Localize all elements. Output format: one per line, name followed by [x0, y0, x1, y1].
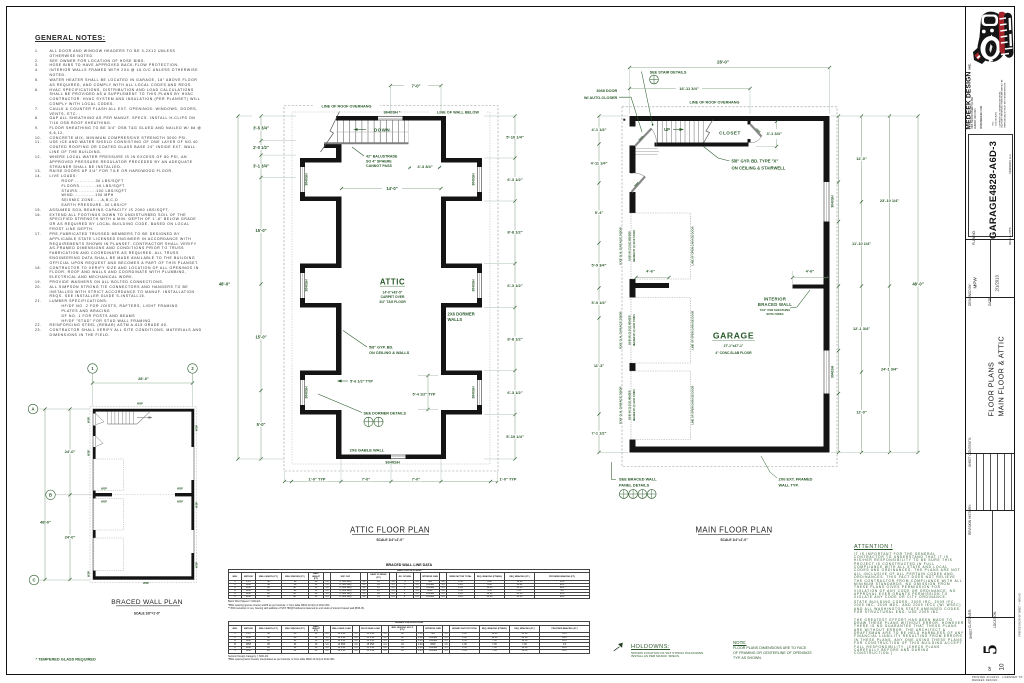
svg-text:7'-0": 7'-0" [362, 477, 371, 482]
svg-text:B: B [49, 492, 52, 497]
svg-text:5'-10 1/4": 5'-10 1/4" [506, 434, 524, 439]
svg-text:14'-0"x43'-5": 14'-0"x43'-5" [383, 291, 403, 295]
svg-text:7'-0": 7'-0" [411, 83, 420, 88]
svg-text:28'-0": 28'-0" [717, 60, 729, 65]
svg-text:15'-0": 15'-0" [255, 228, 266, 233]
svg-text:SEE DORMER DETAILS: SEE DORMER DETAILS [364, 412, 407, 416]
svg-text:LINE OF ROOF OVERHANG: LINE OF ROOF OVERHANG [322, 105, 372, 109]
svg-text:ATTIC FLOOR PLAN: ATTIC FLOOR PLAN [350, 526, 430, 535]
svg-text:ON CEILING & WALLS: ON CEILING & WALLS [369, 351, 410, 355]
svg-text:WSP: WSP [177, 487, 183, 491]
svg-text:5'-0": 5'-0" [257, 422, 266, 427]
svg-text:3640SH: 3640SH [305, 279, 309, 292]
svg-text:2'-0 1/2": 2'-0 1/2" [253, 145, 269, 150]
svg-text:UP: UP [664, 127, 670, 132]
svg-text:LINE OF OPEN GARAGE DOOR: LINE OF OPEN GARAGE DOOR [691, 311, 695, 350]
svg-text:12'-0": 12'-0" [856, 156, 867, 161]
svg-text:3040SH: 3040SH [831, 195, 835, 208]
svg-text:WSP: WSP [101, 487, 107, 491]
svg-text:4'-11 1/4": 4'-11 1/4" [591, 161, 608, 166]
svg-text:16080 W/ (2) 2X12 HEADER: 16080 W/ (2) 2X12 HEADER [629, 390, 632, 420]
svg-text:3640SH: 3640SH [305, 173, 309, 186]
svg-text:WSP: WSP [195, 425, 199, 431]
svg-text:SCALE 1/8"=1'-0": SCALE 1/8"=1'-0" [134, 612, 161, 616]
svg-text:WALL TYP.: WALL TYP. [779, 483, 799, 488]
svg-text:INTERIOR: INTERIOR [764, 297, 786, 302]
svg-text:5'-9 3/4": 5'-9 3/4" [592, 263, 607, 268]
svg-text:48'-0": 48'-0" [219, 282, 230, 287]
svg-text:SEE STAIR DETAILS: SEE STAIR DETAILS [650, 71, 687, 75]
svg-text:14'-0": 14'-0" [386, 186, 397, 191]
svg-text:24'-0": 24'-0" [65, 449, 76, 454]
svg-text:7'-1 1/2": 7'-1 1/2" [592, 431, 607, 436]
svg-text:3'-1 3/4": 3'-1 3/4" [767, 131, 782, 136]
svg-text:CANNOT PASS: CANNOT PASS [366, 164, 392, 168]
svg-text:5'-4 1/2" TYP: 5'-4 1/2" TYP [413, 393, 436, 397]
svg-text:3040SH: 3040SH [831, 365, 835, 378]
svg-text:PANEL DETAILS: PANEL DETAILS [619, 483, 650, 488]
svg-text:11'-3": 11'-3" [594, 363, 604, 368]
svg-text:28'-0": 28'-0" [138, 376, 149, 381]
svg-text:5'-10 1/4": 5'-10 1/4" [506, 134, 524, 139]
svg-text:42" BALUSTRADE: 42" BALUSTRADE [366, 155, 398, 159]
svg-text:1: 1 [91, 366, 94, 371]
svg-text:WSP: WSP [177, 500, 183, 504]
svg-text:* TEMPERED GLASS REQUIRED: * TEMPERED GLASS REQUIRED [36, 657, 97, 662]
svg-text:GARAGE: GARAGE [713, 331, 754, 341]
svg-text:16080 W/ (2) 2X12 HEADER: 16080 W/ (2) 2X12 HEADER [629, 315, 632, 345]
svg-text:9'X8' O.H. GARAGE DOOR: 9'X8' O.H. GARAGE DOOR [619, 386, 623, 424]
svg-text:BRACED WALL: BRACED WALL [758, 302, 792, 307]
svg-text:BOTH SIDES: BOTH SIDES [766, 312, 783, 316]
svg-text:6'-3 1/2": 6'-3 1/2" [507, 177, 522, 182]
svg-text:5'-6 1/2" TYP: 5'-6 1/2" TYP [350, 379, 373, 383]
svg-text:C: C [32, 578, 35, 583]
svg-text:8'-8 1/2": 8'-8 1/2" [507, 230, 522, 235]
svg-text:48'-0": 48'-0" [40, 520, 51, 525]
svg-text:HEADER W/ (2) JACK STUDS: HEADER W/ (2) JACK STUDS [633, 230, 636, 262]
svg-text:23'-10 1/4": 23'-10 1/4" [880, 198, 899, 203]
svg-text:ATTIC: ATTIC [380, 278, 405, 287]
svg-text:3640SH: 3640SH [472, 173, 476, 186]
svg-text:SCALE 1/4"=1'-0": SCALE 1/4"=1'-0" [720, 538, 748, 542]
svg-text:16'-11 3/4": 16'-11 3/4" [679, 86, 699, 91]
svg-text:1'-0" TYP: 1'-0" TYP [499, 477, 516, 482]
svg-text:12'-0": 12'-0" [856, 410, 867, 415]
svg-text:5'-9 1/4": 5'-9 1/4" [592, 300, 607, 305]
svg-text:CARPET OVER: CARPET OVER [381, 295, 405, 299]
svg-text:A: A [31, 407, 34, 412]
svg-text:CLOSET: CLOSET [719, 131, 741, 136]
svg-text:3640SH: 3640SH [472, 386, 476, 399]
svg-text:4'-1 1/4": 4'-1 1/4" [592, 127, 607, 132]
svg-text:5/8" GYP. BD. TYPE "X": 5/8" GYP. BD. TYPE "X" [732, 159, 779, 164]
svg-text:3'-1 3/4": 3'-1 3/4" [253, 164, 269, 169]
svg-text:SEE BRACED WALL: SEE BRACED WALL [619, 477, 657, 482]
svg-text:3068 DOOR: 3068 DOOR [596, 89, 617, 93]
svg-text:LINE OF OPEN GARAGE DOOR: LINE OF OPEN GARAGE DOOR [691, 226, 695, 265]
svg-text:WSP: WSP [87, 571, 91, 577]
svg-text:WSP: WSP [101, 500, 107, 504]
svg-text:2X6 DORMER: 2X6 DORMER [448, 311, 475, 316]
svg-text:6'-3 1/2": 6'-3 1/2" [507, 283, 522, 288]
svg-text:4'-6": 4'-6" [806, 269, 815, 274]
svg-text:W/ AUTO-CLOSER: W/ AUTO-CLOSER [584, 96, 618, 100]
svg-text:12'-1 3/4": 12'-1 3/4" [853, 326, 870, 331]
svg-text:3'-5 3/4": 3'-5 3/4" [253, 126, 269, 131]
svg-text:4'-6": 4'-6" [646, 269, 655, 274]
svg-text:ON CEILING & STAIRWELL: ON CEILING & STAIRWELL [732, 166, 786, 171]
svg-text:WALLS: WALLS [448, 317, 463, 322]
svg-text:BRACED WALL PLAN: BRACED WALL PLAN [111, 599, 183, 606]
svg-text:3640SH *: 3640SH * [383, 109, 401, 114]
svg-text:WSP: WSP [195, 502, 199, 508]
svg-text:3640SH: 3640SH [385, 459, 400, 464]
svg-text:2: 2 [191, 366, 194, 371]
svg-text:9'X8' O.H. GARAGE DOOR: 9'X8' O.H. GARAGE DOOR [619, 226, 623, 264]
svg-text:WSP: WSP [137, 402, 143, 406]
svg-text:SCALE 1/4"=1'-0": SCALE 1/4"=1'-0" [376, 538, 404, 542]
svg-text:3640SH: 3640SH [472, 279, 476, 292]
svg-text:24'-1 3/4": 24'-1 3/4" [881, 367, 898, 372]
svg-text:LINE OF WALL BELOW: LINE OF WALL BELOW [437, 111, 479, 115]
svg-text:LINE OF OPEN GARAGE DOOR: LINE OF OPEN GARAGE DOOR [691, 386, 695, 425]
svg-text:WSP: WSP [195, 562, 199, 568]
svg-text:8'-8 1/2": 8'-8 1/2" [507, 336, 522, 341]
svg-text:16080 W/ (2) 2X12 HEADER: 16080 W/ (2) 2X12 HEADER [629, 231, 632, 261]
svg-text:WSP: WSP [87, 417, 91, 423]
svg-text:4" CONC.SLAB FLOOR: 4" CONC.SLAB FLOOR [715, 351, 752, 355]
svg-text:1'-0" TYP: 1'-0" TYP [308, 477, 325, 482]
svg-text:DOWN: DOWN [374, 127, 390, 132]
svg-text:9'X8' O.H. GARAGE DOOR: 9'X8' O.H. GARAGE DOOR [619, 311, 623, 349]
svg-text:11'-10 1/4": 11'-10 1/4" [852, 241, 871, 246]
svg-text:SO 4" SPHERE: SO 4" SPHERE [366, 159, 392, 163]
svg-text:HEADER W/ (2) JACK STUDS: HEADER W/ (2) JACK STUDS [633, 389, 636, 421]
svg-text:7'-0": 7'-0" [412, 477, 421, 482]
svg-text:4'-3 3/4": 4'-3 3/4" [417, 164, 432, 169]
svg-text:WSP: WSP [143, 581, 149, 585]
svg-text:15'-0": 15'-0" [255, 335, 266, 340]
svg-text:MAIN FLOOR PLAN: MAIN FLOOR PLAN [695, 526, 772, 535]
svg-text:2X6 GABLE WALL: 2X6 GABLE WALL [350, 447, 385, 452]
svg-text:5/8" GYP. BD.: 5/8" GYP. BD. [369, 346, 393, 350]
svg-text:27'-1"x47'-1": 27'-1"x47'-1" [724, 344, 744, 348]
svg-text:6'-3 1/2": 6'-3 1/2" [507, 390, 522, 395]
svg-text:LINE OF ROOF OVERHANG: LINE OF ROOF OVERHANG [690, 100, 740, 104]
svg-text:5'-4": 5'-4" [595, 210, 604, 215]
svg-text:3/4" T&G FLOOR: 3/4" T&G FLOOR [379, 300, 406, 304]
svg-text:WSP: WSP [87, 450, 91, 456]
svg-text:48'-0": 48'-0" [912, 282, 923, 287]
svg-text:3640SH: 3640SH [305, 386, 309, 399]
svg-text:2X6 EXT. FRAMED: 2X6 EXT. FRAMED [779, 477, 813, 482]
svg-text:24'-0": 24'-0" [65, 534, 76, 539]
svg-text:HEADER W/ (2) JACK STUDS: HEADER W/ (2) JACK STUDS [633, 314, 636, 346]
